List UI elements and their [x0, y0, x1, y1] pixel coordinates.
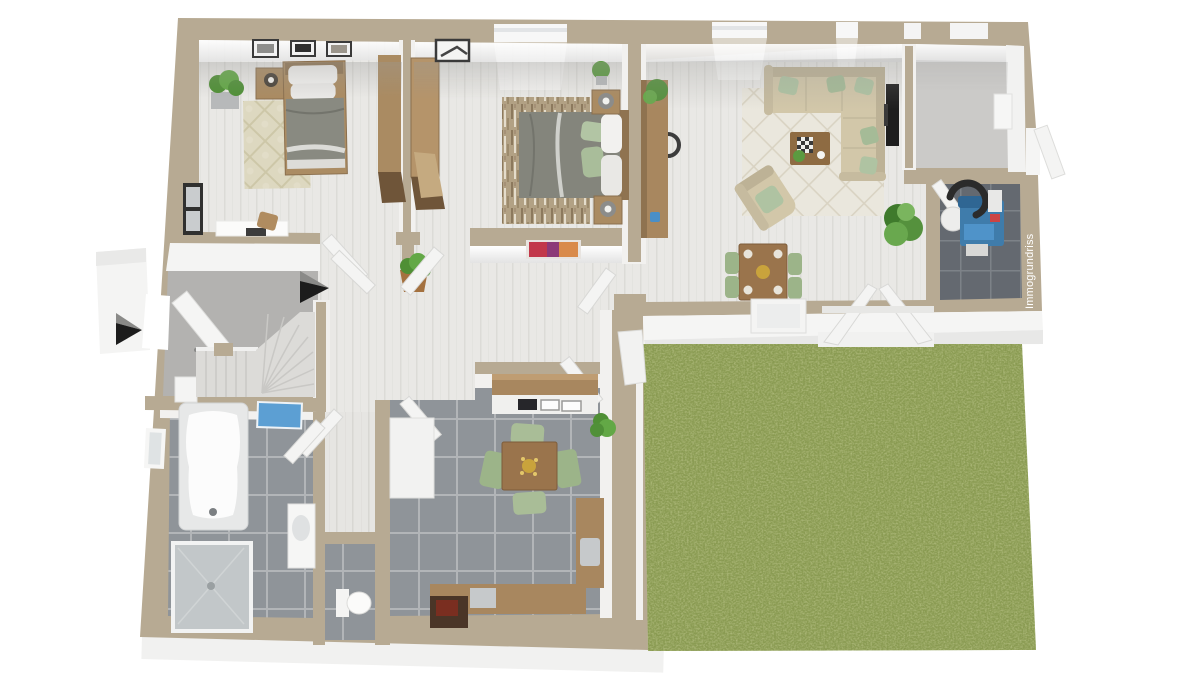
- svg-text:Immogrundriss: Immogrundriss: [1024, 233, 1036, 309]
